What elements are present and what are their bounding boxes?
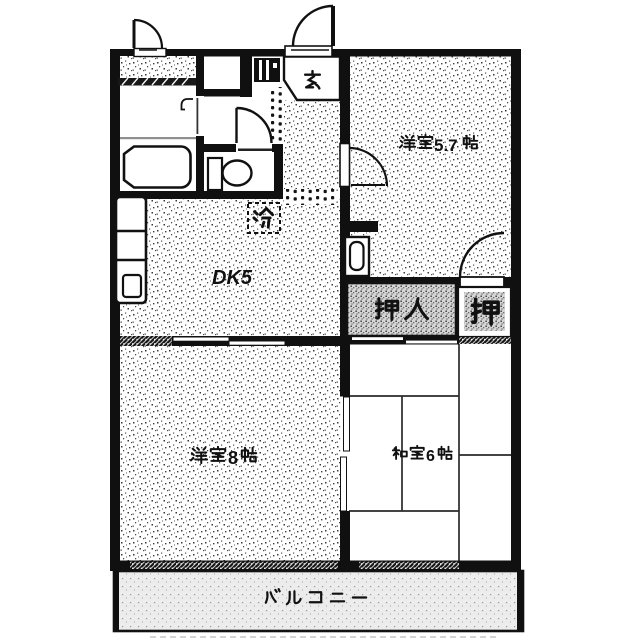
svg-text:8: 8 xyxy=(228,448,238,468)
svg-text:5.7: 5.7 xyxy=(434,136,458,155)
svg-text:DK5: DK5 xyxy=(212,267,253,289)
svg-text:6: 6 xyxy=(426,448,435,465)
